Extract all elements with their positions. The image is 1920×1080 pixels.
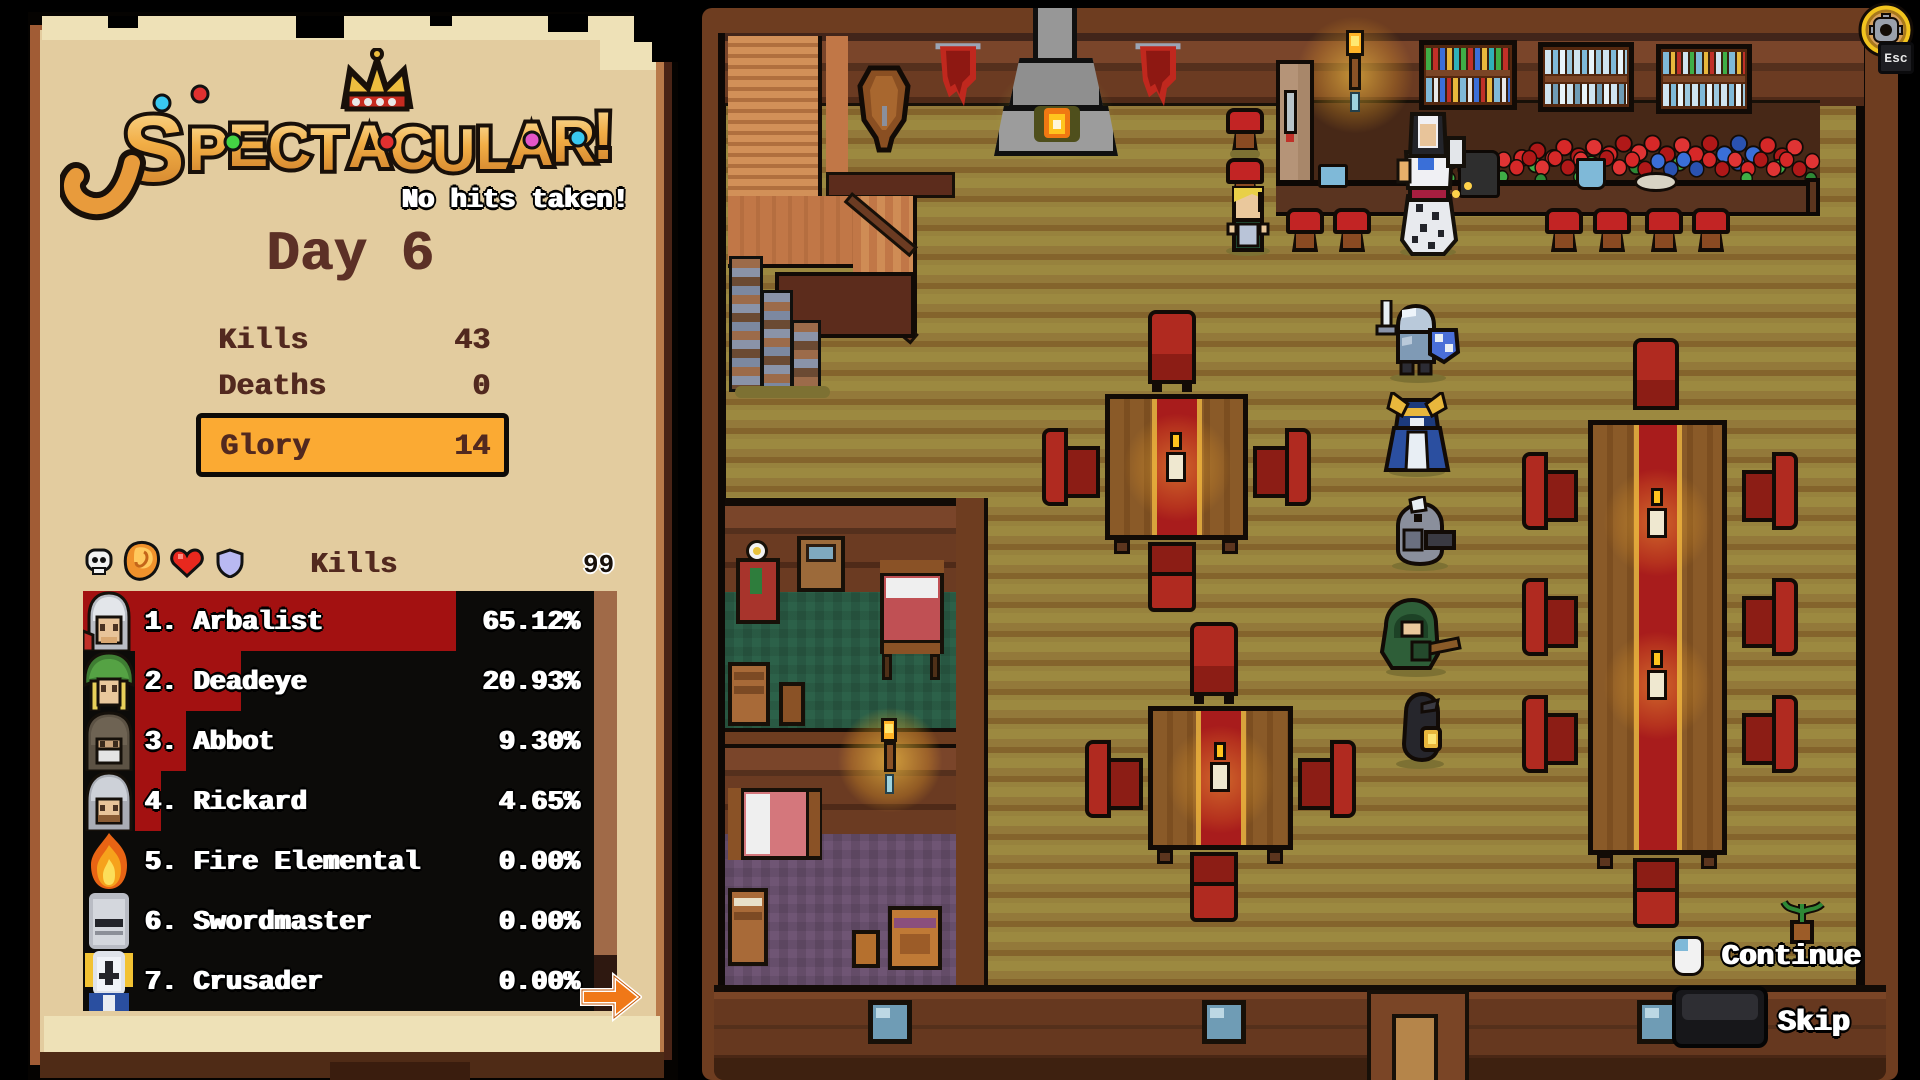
- svg-text:!: !: [592, 98, 615, 174]
- svg-text:U: U: [432, 117, 475, 184]
- svg-text:C: C: [390, 115, 433, 182]
- svg-text:P: P: [188, 116, 228, 183]
- svg-text:C: C: [268, 114, 311, 181]
- svg-text:L: L: [476, 115, 513, 182]
- svg-text:T: T: [310, 116, 347, 183]
